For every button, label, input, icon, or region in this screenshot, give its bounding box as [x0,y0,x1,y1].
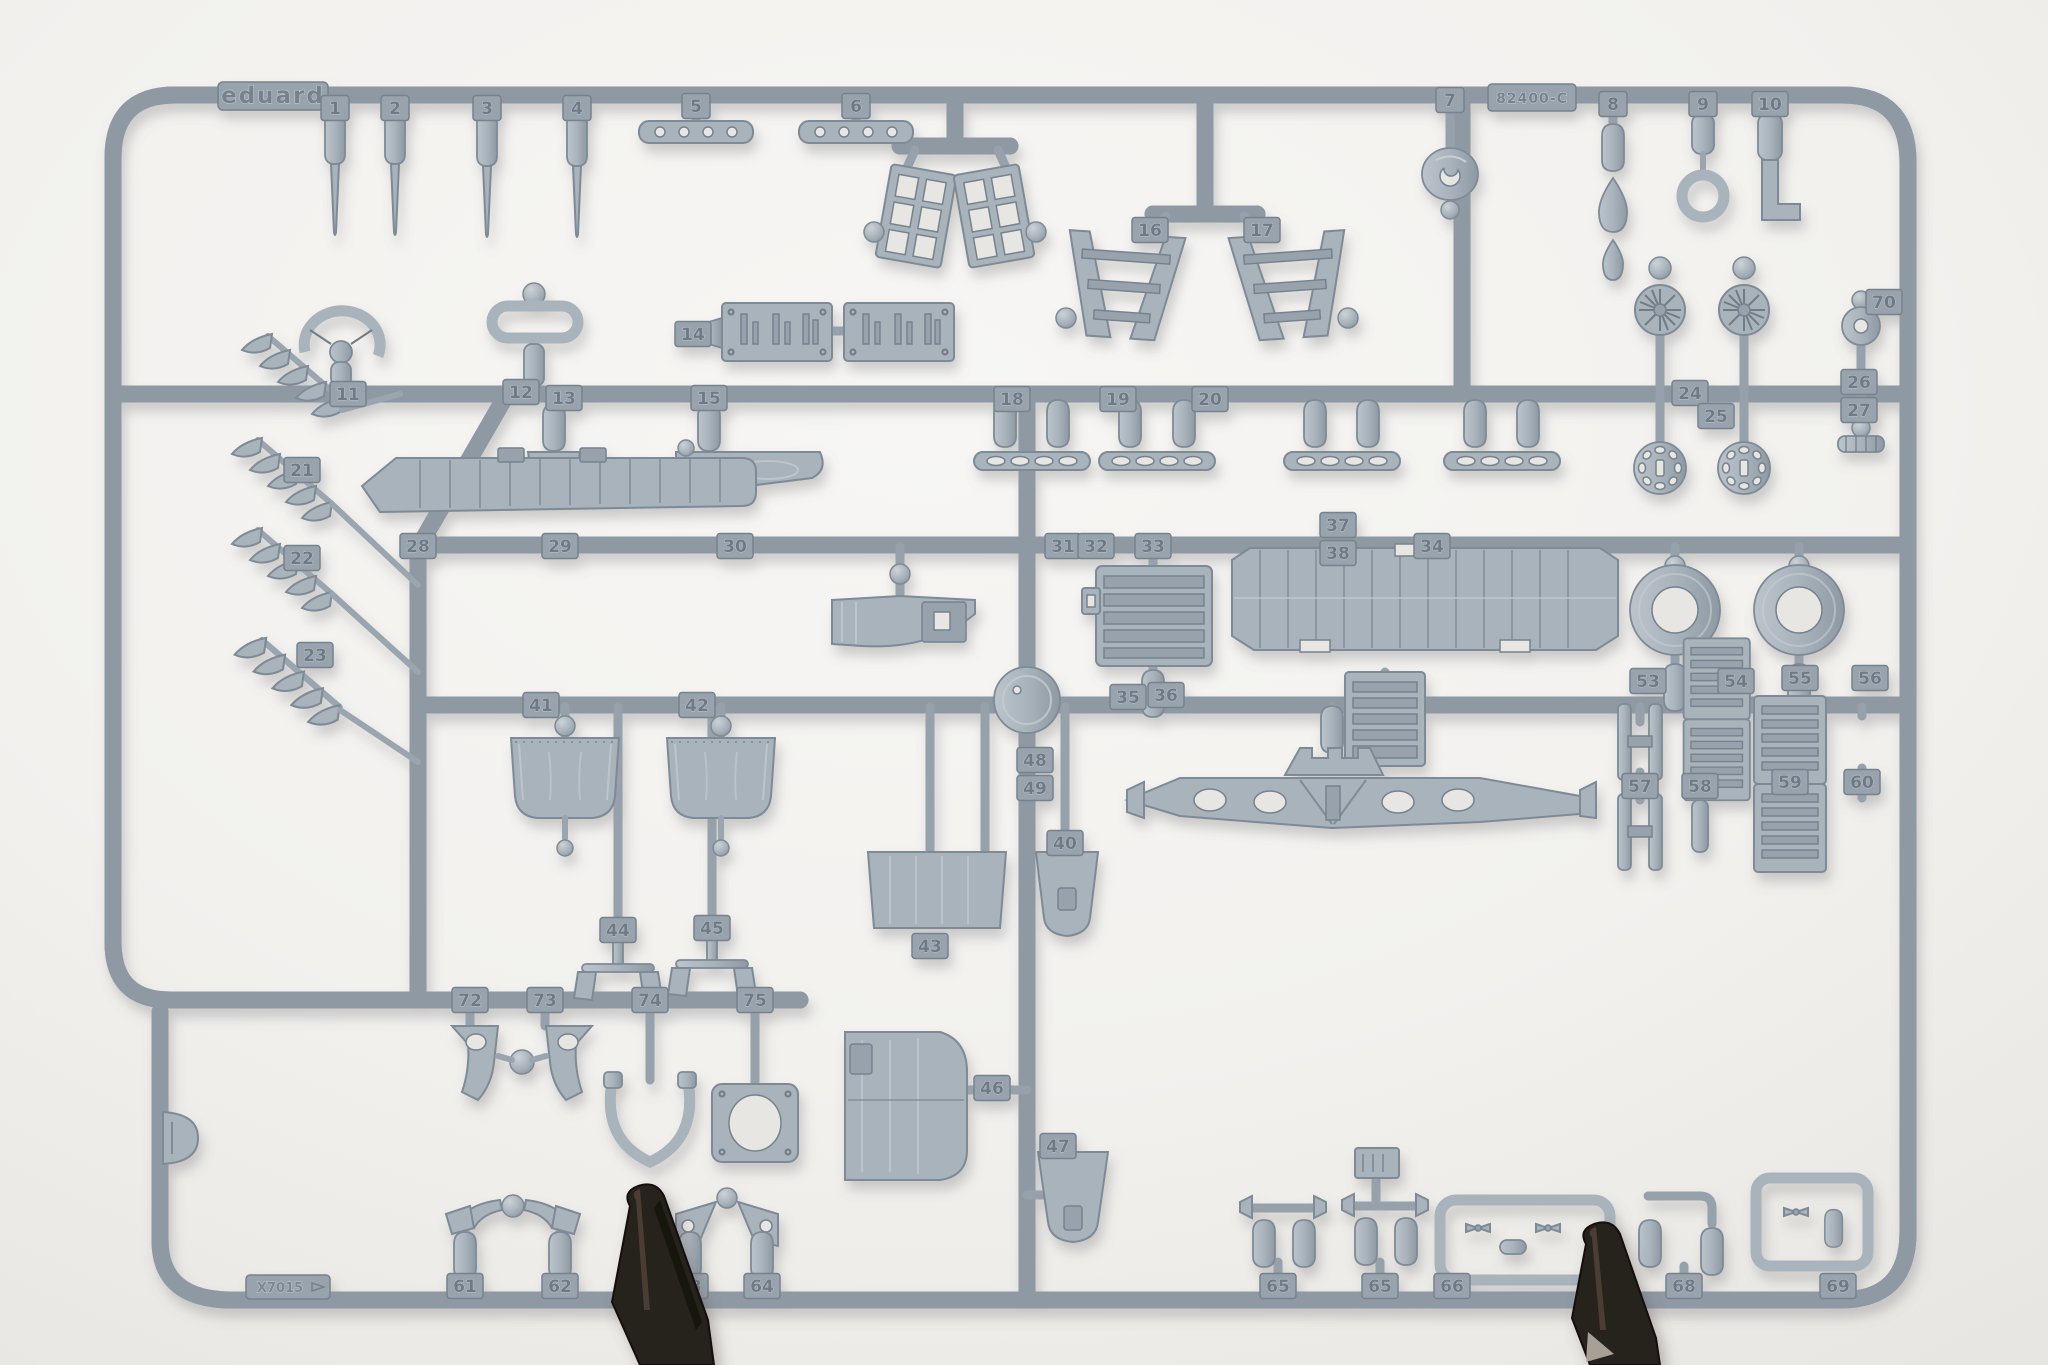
svg-text:7: 7 [1444,91,1456,111]
part-number-tag: 9 [1689,92,1717,117]
part-number-tag: 59 [1772,770,1808,795]
svg-text:44: 44 [606,921,630,941]
part-number-tag: 13 [546,386,582,411]
part-number-tag: 33 [1135,534,1171,559]
part-number-tag: 53 [1630,669,1666,694]
part-number-tag: 21 [284,458,320,483]
part-number-tag: 45 [694,916,730,941]
part-number-tag: 64 [744,1274,780,1299]
svg-text:70: 70 [1872,293,1896,313]
part-number-tag: 56 [1852,666,1888,691]
part-seat-pan-upper [1036,852,1098,936]
svg-text:21: 21 [290,461,314,481]
part-number-tag: 38 [1320,541,1356,566]
part-number-tag: 31 [1045,534,1081,559]
part-number-tag: 43 [912,934,948,959]
part-number-tag: 29 [542,534,578,559]
part-number-tag: 18 [994,387,1030,412]
part-number-tag: 28 [400,534,436,559]
svg-text:23: 23 [303,646,327,666]
brand-marking-tag: eduard [218,82,328,110]
svg-text:61: 61 [453,1277,477,1297]
part-number-tag: 42 [679,693,715,718]
svg-text:37: 37 [1326,516,1350,536]
svg-text:6: 6 [850,97,862,117]
part-number-tag: 14 [675,322,711,347]
part-number-tag: 8 [1599,92,1627,117]
svg-text:75: 75 [743,991,767,1011]
part-number-tag: 25 [1698,404,1734,429]
svg-text:16: 16 [1138,221,1162,241]
svg-text:60: 60 [1850,773,1874,793]
svg-text:26: 26 [1847,373,1871,393]
part-number-tag: 57 [1622,774,1658,799]
svg-text:48: 48 [1023,751,1047,771]
svg-text:35: 35 [1116,688,1140,708]
part-square-plate [1355,1148,1399,1178]
svg-text:57: 57 [1628,777,1652,797]
part-number-tag: 66 [1434,1274,1470,1299]
svg-text:40: 40 [1053,834,1077,854]
svg-text:2: 2 [389,99,401,119]
svg-text:25: 25 [1704,407,1728,427]
part-number-tag: 41 [523,693,559,718]
svg-text:5: 5 [690,97,702,117]
part-number-tag: 70 [1866,290,1902,315]
part-number-tag: 16 [1132,218,1168,243]
svg-text:32: 32 [1084,537,1108,557]
part-number-tag: 32 [1078,534,1114,559]
svg-text:33: 33 [1141,537,1165,557]
svg-text:4: 4 [571,99,583,119]
part-number-tag: 24 [1672,381,1708,406]
part-number-tag: 1 [321,96,349,121]
part-number-tag: 37 [1320,513,1356,538]
svg-text:13: 13 [552,389,576,409]
svg-text:3: 3 [481,99,493,119]
part-number-tag: 68 [1666,1274,1702,1299]
svg-text:12: 12 [509,383,533,403]
part-number-tag: 17 [1244,218,1280,243]
svg-text:65: 65 [1368,1277,1392,1297]
svg-text:42: 42 [685,696,709,716]
part-number-tag: 58 [1682,774,1718,799]
svg-text:22: 22 [290,549,314,569]
svg-text:55: 55 [1788,669,1812,689]
part-number-tag: 65 [1260,1274,1296,1299]
svg-text:46: 46 [980,1079,1004,1099]
svg-text:53: 53 [1636,672,1660,692]
part-number-tag: 23 [297,643,333,668]
sprue-photo-canvas: eduard 82400-C X7015 1234561617789101112… [0,0,2048,1365]
part-number-tag: 4 [563,96,591,121]
part-number-tag: 69 [1820,1274,1856,1299]
part-number-tag: 10 [1752,92,1788,117]
part-number-tag: 44 [600,918,636,943]
svg-text:59: 59 [1778,773,1802,793]
part-number-tag: 54 [1718,669,1754,694]
svg-text:10: 10 [1758,95,1782,115]
part-number-tag: 5 [682,94,710,119]
svg-text:62: 62 [548,1277,572,1297]
svg-text:68: 68 [1672,1277,1696,1297]
part-number-tag: 74 [632,988,668,1013]
part-number-tag: 2 [381,96,409,121]
part-number-tag: 61 [447,1274,483,1299]
part-number-tag: 65 [1362,1274,1398,1299]
svg-text:54: 54 [1724,672,1748,692]
svg-text:43: 43 [918,937,942,957]
part-number-tag: 46 [974,1076,1010,1101]
svg-text:15: 15 [697,389,721,409]
svg-text:56: 56 [1858,669,1882,689]
part-number-tag: 27 [1841,398,1877,423]
svg-text:47: 47 [1046,1137,1070,1157]
svg-text:58: 58 [1688,777,1712,797]
svg-text:64: 64 [750,1277,774,1297]
part-number-tag: 55 [1782,666,1818,691]
part-number-tag: 11 [330,382,366,407]
svg-text:69: 69 [1826,1277,1850,1297]
part-number-tag: 34 [1414,534,1450,559]
mold-marking-text: X7015 [257,1281,303,1296]
part-number-tag: 22 [284,546,320,571]
svg-text:1: 1 [329,99,341,119]
part-number-tag: 15 [691,386,727,411]
part-number-tag: 40 [1047,831,1083,856]
part-oval-ring-plate [712,1084,798,1162]
part-instrument-panels [702,303,954,361]
part-number-tag: 62 [542,1274,578,1299]
svg-text:49: 49 [1023,779,1047,799]
brand-marking-text: eduard [221,83,325,109]
part-number-tag: 36 [1148,683,1184,708]
svg-text:34: 34 [1420,537,1444,557]
svg-text:20: 20 [1198,390,1222,410]
svg-text:19: 19 [1106,390,1130,410]
part-number-tag: 75 [737,988,773,1013]
svg-text:24: 24 [1678,384,1702,404]
svg-text:17: 17 [1250,221,1274,241]
part-number-tag: 12 [503,380,539,405]
svg-text:27: 27 [1847,401,1871,421]
svg-text:45: 45 [700,919,724,939]
part-cockpit-side-panel [868,852,1006,928]
part-number-tag: 30 [717,534,753,559]
svg-text:73: 73 [533,991,557,1011]
code-marking-tag: 82400-C [1488,84,1576,111]
part-number-tag: 26 [1841,370,1877,395]
part-corrugated-wing-section [1232,544,1618,652]
svg-text:65: 65 [1266,1277,1290,1297]
part-number-tag: 19 [1100,387,1136,412]
svg-text:28: 28 [406,537,430,557]
photo-of-model-kit-sprue: eduard 82400-C X7015 1234561617789101112… [0,0,2048,1365]
part-number-tag: 72 [452,988,488,1013]
code-marking-text: 82400-C [1496,91,1568,107]
svg-text:30: 30 [723,537,747,557]
svg-text:14: 14 [681,325,705,345]
part-number-tag: 48 [1017,748,1053,773]
svg-text:11: 11 [336,385,360,405]
svg-text:18: 18 [1000,390,1024,410]
part-number-tag: 6 [842,94,870,119]
svg-text:72: 72 [458,991,482,1011]
part-number-tag: 47 [1040,1134,1076,1159]
svg-text:41: 41 [529,696,553,716]
svg-text:31: 31 [1051,537,1075,557]
svg-text:36: 36 [1154,686,1178,706]
mold-marking-tag: X7015 [246,1275,330,1299]
part-number-tag: 73 [527,988,563,1013]
part-number-tag: 49 [1017,776,1053,801]
svg-text:9: 9 [1697,95,1709,115]
part-sprue-hub [994,667,1060,733]
svg-text:66: 66 [1440,1277,1464,1297]
svg-text:8: 8 [1607,95,1619,115]
part-number-tag: 20 [1192,387,1228,412]
svg-text:74: 74 [638,991,662,1011]
part-number-tag: 3 [473,96,501,121]
svg-text:29: 29 [548,537,572,557]
svg-text:38: 38 [1326,544,1350,564]
part-number-tag: 35 [1110,685,1146,710]
part-number-tag: 7 [1436,88,1464,113]
part-cockpit-floor [845,1032,967,1180]
part-number-tag: 60 [1844,770,1880,795]
